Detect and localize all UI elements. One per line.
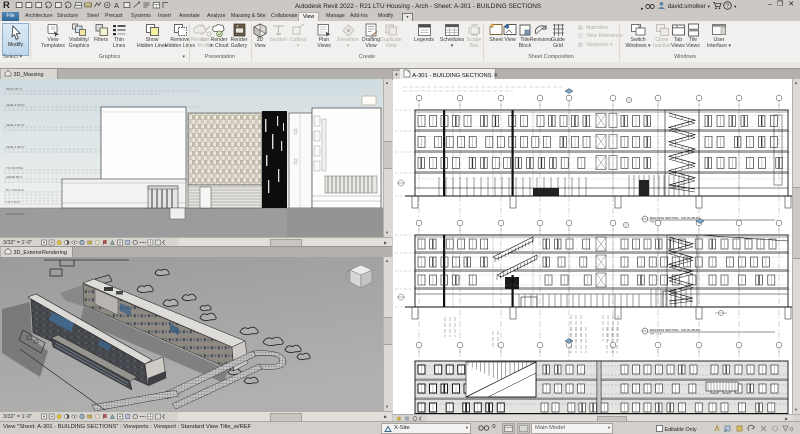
- svg-text:LEVEL 2 114'-0": LEVEL 2 114'-0": [6, 123, 25, 127]
- svg-text:BUILDING SECTION - SOUTH BLDG: BUILDING SECTION - SOUTH BLDG: [650, 216, 701, 220]
- svg-text:ROOF 137'-0": ROOF 137'-0": [6, 87, 22, 91]
- svg-text:BUILDING SECTION - SOUTH BLDG: BUILDING SECTION - SOUTH BLDG: [650, 328, 701, 332]
- svg-text:LEVEL 3 125'-6": LEVEL 3 125'-6": [6, 103, 25, 107]
- svg-text:A: A: [114, 1, 119, 10]
- svg-text:GRADE 98'-0": GRADE 98'-0": [6, 175, 23, 179]
- svg-text:FOOTING 90'-0": FOOTING 90'-0": [6, 212, 25, 216]
- svg-text::0: :0: [789, 427, 793, 433]
- svg-text:?: ?: [726, 4, 729, 10]
- svg-text:3/32" = 1'-0": 3/32" = 1'-0": [650, 334, 662, 336]
- svg-text:T.O. FOOTING: T.O. FOOTING: [6, 166, 23, 170]
- svg-text:LEVEL 1 100'-0": LEVEL 1 100'-0": [6, 145, 25, 149]
- svg-text:B.O. FTG 94'-0": B.O. FTG 94'-0": [6, 188, 25, 192]
- svg-text:T.O.S. 92'-0": T.O.S. 92'-0": [6, 200, 21, 204]
